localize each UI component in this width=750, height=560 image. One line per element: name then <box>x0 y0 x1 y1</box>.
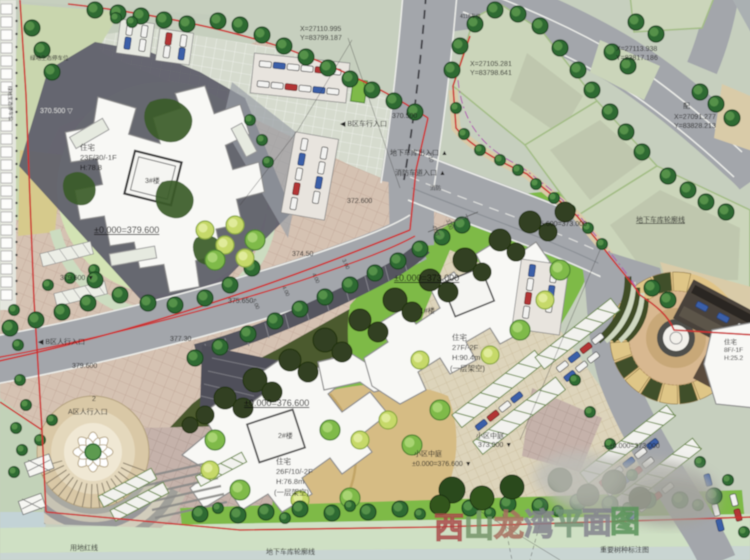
svg-text:配: 配 <box>683 102 690 110</box>
svg-text:370.500: 370.500 <box>392 113 417 120</box>
svg-text:—±0.000=373.000: —±0.000=373.000 <box>602 443 660 450</box>
svg-text:地下车库轮廓线: 地下车库轮廓线 <box>266 547 315 556</box>
svg-text:龙: 龙 <box>494 510 524 543</box>
svg-text:H:78.8: H:78.8 <box>80 163 102 172</box>
svg-text:±0.000=376.600: ±0.000=376.600 <box>244 398 309 408</box>
svg-text:H:90.4m: H:90.4m <box>452 353 480 362</box>
svg-text:8F/-1F: 8F/-1F <box>724 347 743 354</box>
svg-text:27F/-2F: 27F/-2F <box>452 343 479 352</box>
svg-text:(一层架空): (一层架空) <box>450 363 485 373</box>
svg-text:4118车位: 4118车位 <box>460 13 481 20</box>
svg-text:小区中庭: 小区中庭 <box>476 431 504 440</box>
svg-text:平: 平 <box>554 508 584 541</box>
svg-text:379.600 ▼: 379.600 ▼ <box>60 275 94 282</box>
svg-text:地下车库出入口 ▲: 地下车库出入口 ▲ <box>390 148 448 157</box>
svg-text:370.500 ▽: 370.500 ▽ <box>40 108 73 115</box>
svg-text:消防: 消防 <box>430 184 442 192</box>
svg-text:地下车库轮廓线: 地下车库轮廓线 <box>636 215 685 224</box>
svg-text:373.000 ▼: 373.000 ▼ <box>478 442 512 449</box>
svg-text:372.600: 372.600 <box>347 198 372 205</box>
svg-text:374.50: 374.50 <box>292 251 314 258</box>
svg-text:Y=83817.186: Y=83817.186 <box>616 55 658 62</box>
svg-text:375.650: 375.650 <box>228 298 253 305</box>
svg-text:消防车道入口 ▲: 消防车道入口 ▲ <box>395 168 446 177</box>
svg-text:X=27113.938: X=27113.938 <box>616 46 657 53</box>
svg-text:X=27110.995: X=27110.995 <box>300 26 341 33</box>
svg-text:±0.000=373.000: ±0.000=373.000 <box>394 273 459 283</box>
svg-text:26F/10/-2F: 26F/10/-2F <box>276 467 313 476</box>
svg-text:住宅: 住宅 <box>724 337 738 346</box>
svg-text:X=27105.281: X=27105.281 <box>470 61 512 68</box>
svg-text:西: 西 <box>434 512 464 545</box>
svg-text:住宅: 住宅 <box>276 456 291 466</box>
svg-text:面: 面 <box>582 507 612 540</box>
svg-text:重要树种标注图: 重要树种标注图 <box>600 545 649 554</box>
svg-text:±0.000=376.600 ▼: ±0.000=376.600 ▼ <box>412 461 472 468</box>
svg-text:A区人行入口: A区人行入口 <box>68 407 108 416</box>
svg-text:23F/30/-1F: 23F/30/-1F <box>80 153 117 162</box>
svg-text:2#楼: 2#楼 <box>278 431 293 440</box>
svg-text:(一层架空): (一层架空) <box>274 487 309 497</box>
svg-text:用地红线: 用地红线 <box>70 543 98 552</box>
svg-text:5.600=373.000: 5.600=373.000 <box>540 221 587 228</box>
svg-text:Y=83798.641: Y=83798.641 <box>470 70 512 77</box>
svg-text:Y=83828.213: Y=83828.213 <box>674 123 716 130</box>
svg-text:±0.000=379.600: ±0.000=379.600 <box>94 225 159 235</box>
svg-text:图: 图 <box>610 506 640 539</box>
svg-text:2: 2 <box>92 396 96 403</box>
svg-text:X=27091.277: X=27091.277 <box>674 114 716 121</box>
svg-text:◀ B区人行入口: ◀ B区人行入口 <box>38 337 85 346</box>
svg-text:H:76.8m: H:76.8m <box>276 477 304 486</box>
svg-text:1#楼: 1#楼 <box>420 306 435 315</box>
svg-text:377.30: 377.30 <box>170 336 192 343</box>
svg-text:住宅: 住宅 <box>80 142 95 152</box>
svg-text:山: 山 <box>464 511 494 544</box>
svg-text:绿地生态停车位: 绿地生态停车位 <box>30 54 69 62</box>
svg-text:湾: 湾 <box>524 508 554 542</box>
svg-text:3#楼: 3#楼 <box>145 176 160 185</box>
svg-text:绿地生态停车位: 绿地生态停车位 <box>6 86 14 121</box>
svg-text:住宅: 住宅 <box>452 332 467 342</box>
svg-text:H:25.2: H:25.2 <box>724 355 744 362</box>
svg-text:Y=83799.187: Y=83799.187 <box>300 35 342 42</box>
svg-text:379.600: 379.600 <box>72 363 97 370</box>
svg-text:◀ B区车行入口: ◀ B区车行入口 <box>340 119 387 128</box>
svg-text:小区中庭: 小区中庭 <box>414 449 442 458</box>
